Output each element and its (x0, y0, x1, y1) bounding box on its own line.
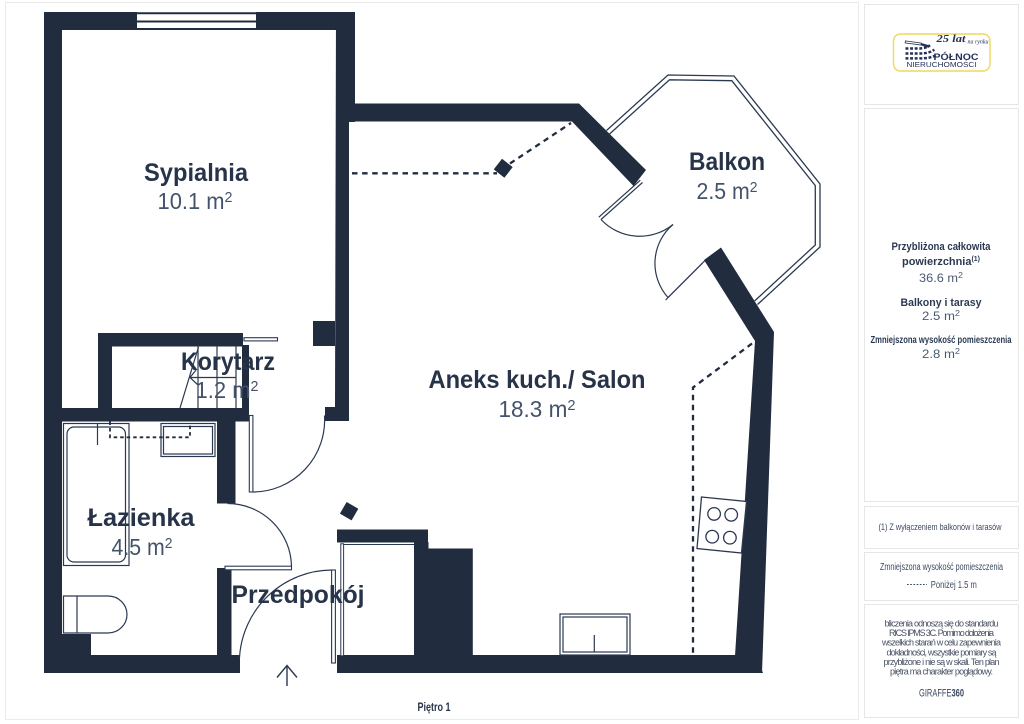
svg-text:powierzchnia(1): powierzchnia(1) (902, 256, 980, 268)
svg-text:bliczenia odnoszą się do stand: bliczenia odnoszą się do standardu (885, 619, 999, 629)
svg-text:RICS IPMS 3C. Pomimo dołożenia: RICS IPMS 3C. Pomimo dołożenia (889, 628, 994, 638)
svg-text:Aneks kuch./ Salon: Aneks kuch./ Salon (429, 366, 646, 394)
svg-text:Zmniejszona wysokość pomieszcz: Zmniejszona wysokość pomieszczenia (880, 562, 1003, 573)
svg-text:przybliżone i nie są w skali.: przybliżone i nie są w skali. Ten plan (884, 657, 1000, 667)
svg-text:2.8 m2: 2.8 m2 (922, 347, 961, 361)
svg-text:Balkon: Balkon (689, 148, 765, 176)
svg-text:GIRAFFE360: GIRAFFE360 (919, 688, 964, 700)
svg-text:1.2 m2: 1.2 m2 (196, 377, 259, 403)
svg-text:2.5 m2: 2.5 m2 (922, 309, 961, 323)
svg-text:NIERUCHOMOŚCI: NIERUCHOMOŚCI (907, 60, 977, 69)
svg-text:dokładności, wszystkie pomiary: dokładności, wszystkie pomiary są (887, 647, 997, 657)
svg-text:Poniżej 1.5 m: Poniżej 1.5 m (931, 580, 977, 591)
svg-text:Piętro 1: Piętro 1 (418, 702, 451, 714)
svg-text:na rynku: na rynku (968, 40, 989, 46)
svg-text:PÓŁNOC: PÓŁNOC (934, 51, 979, 63)
svg-text:Przybliżona całkowita: Przybliżona całkowita (892, 241, 992, 253)
svg-text:Zmniejszona wysokość pomieszcz: Zmniejszona wysokość pomieszczenia (871, 335, 1012, 346)
svg-text:Balkony i tarasy: Balkony i tarasy (901, 297, 983, 309)
svg-text:(1) Z wyłączeniem balkonów i t: (1) Z wyłączeniem balkonów i tarasów (879, 522, 1002, 533)
svg-text:piętra ma charakter poglądowy.: piętra ma charakter poglądowy. (890, 667, 993, 677)
svg-text:Korytarz: Korytarz (181, 348, 275, 376)
svg-text:Przedpokój: Przedpokój (232, 581, 365, 609)
svg-text:4.5 m2: 4.5 m2 (112, 534, 173, 560)
svg-text:36.6 m2: 36.6 m2 (919, 271, 964, 285)
svg-text:Sypialnia: Sypialnia (144, 159, 249, 187)
svg-text:10.1 m2: 10.1 m2 (158, 188, 233, 214)
svg-text:2.5 m2: 2.5 m2 (697, 178, 758, 204)
svg-text:18.3 m2: 18.3 m2 (499, 396, 576, 422)
svg-text:wszelkich starań w celu zapewn: wszelkich starań w celu zapewnienia (881, 638, 1001, 648)
svg-text:25 lat: 25 lat (935, 34, 967, 45)
svg-text:Łazienka: Łazienka (88, 504, 196, 532)
